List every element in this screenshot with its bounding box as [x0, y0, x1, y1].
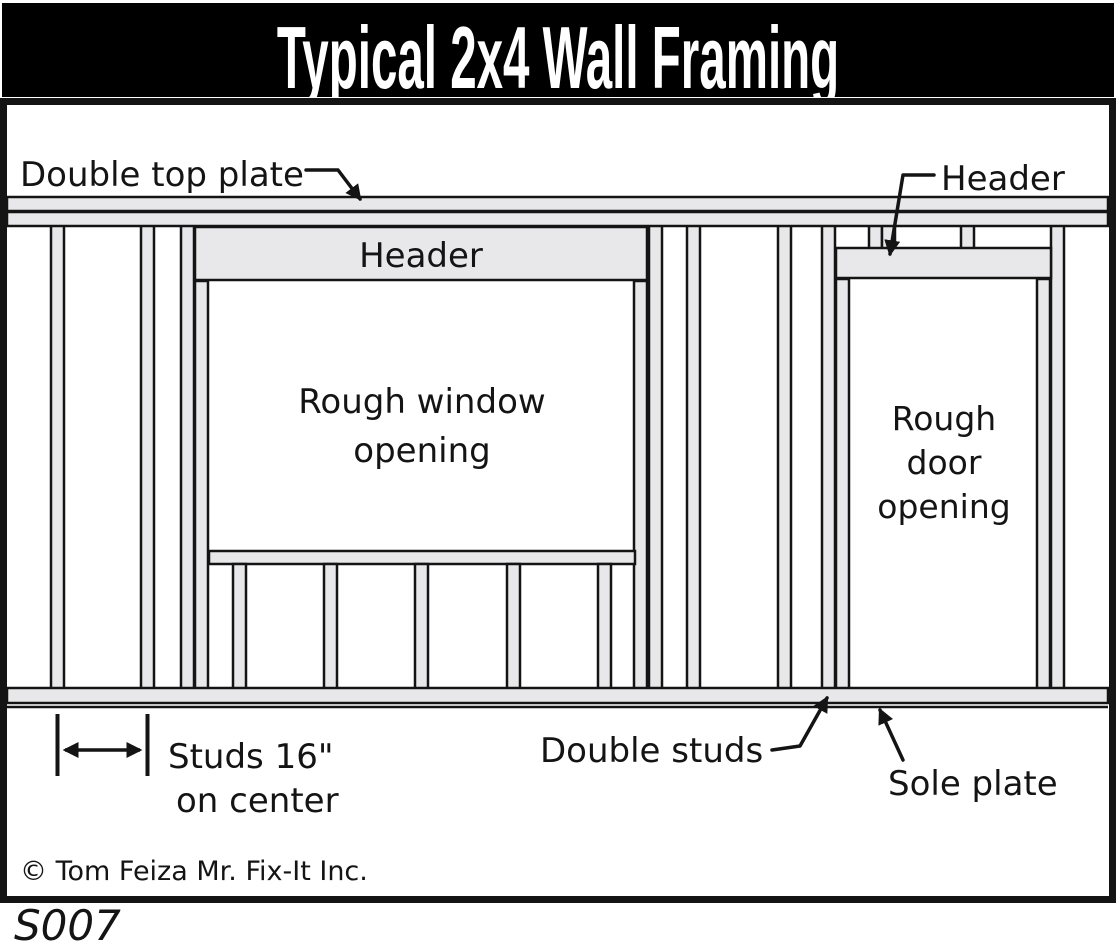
cripple-stud — [507, 564, 520, 689]
wall-framing-diagram: Typical 2x4 Wall Framing — [0, 0, 1116, 944]
cripple-stud — [415, 564, 428, 689]
door-header — [836, 248, 1051, 278]
label-rough-door-line3: opening — [877, 487, 1010, 526]
stud-door-king-left — [822, 225, 835, 689]
stud — [141, 225, 154, 689]
label-sole-plate: Sole plate — [888, 764, 1058, 804]
door-trimmer-left — [836, 279, 849, 689]
cripple-stud — [324, 564, 337, 689]
label-window-header: Header — [359, 236, 483, 276]
stud — [51, 225, 64, 689]
label-double-top-plate: Double top plate — [20, 155, 304, 195]
top-plate-upper — [7, 197, 1108, 211]
copyright-text: © Tom Feiza Mr. Fix-It Inc. — [20, 856, 368, 887]
page: Typical 2x4 Wall Framing — [0, 0, 1116, 944]
top-plate-lower — [7, 212, 1108, 226]
label-studs-line2: on center — [176, 781, 339, 821]
stud-window-king-left — [181, 225, 194, 689]
label-studs-line1: Studs 16" — [168, 737, 333, 777]
diagram-code: S007 — [14, 901, 121, 944]
sole-plate-board — [7, 688, 1108, 703]
label-door-header: Header — [941, 159, 1065, 199]
label-rough-door-line2: door — [907, 443, 982, 482]
cripple-stud — [233, 564, 246, 689]
window-trimmer-left — [195, 281, 208, 689]
stud-door-king-right — [1051, 225, 1064, 689]
cripple-stud — [869, 225, 882, 249]
door-trimmer-right — [1037, 279, 1050, 689]
label-rough-window-line1: Rough window — [298, 382, 545, 422]
label-rough-window-line2: opening — [353, 431, 490, 471]
stud-window-king-right — [649, 225, 662, 689]
page-title: Typical 2x4 Wall Framing — [277, 8, 839, 106]
label-double-studs: Double studs — [540, 731, 763, 771]
stud — [687, 225, 700, 689]
label-rough-door-line1: Rough — [892, 399, 996, 438]
stud — [778, 225, 791, 689]
window-trimmer-right — [634, 281, 647, 689]
cripple-stud — [961, 225, 974, 249]
window-sill — [209, 551, 635, 564]
cripple-stud — [598, 564, 611, 689]
title-bar: Typical 2x4 Wall Framing — [2, 3, 1114, 107]
